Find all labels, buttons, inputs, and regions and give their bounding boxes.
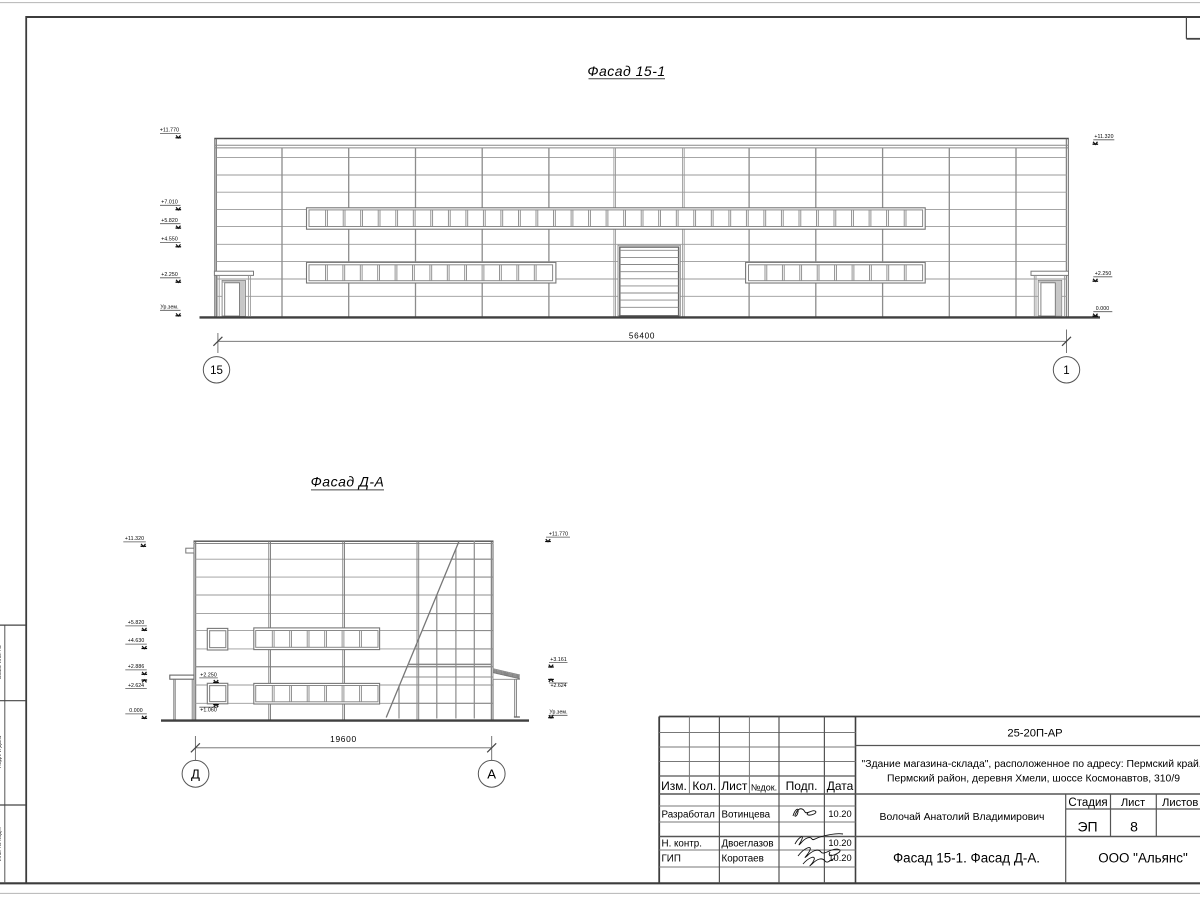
svg-text:+2.624: +2.624 (128, 683, 144, 689)
svg-text:1: 1 (1063, 365, 1069, 377)
svg-text:Волочай Анатолий Владимирович: Волочай Анатолий Владимирович (880, 812, 1045, 823)
svg-text:Листов: Листов (1162, 797, 1198, 809)
svg-text:Фасад 15-1. Фасад Д-А.: Фасад 15-1. Фасад Д-А. (893, 851, 1040, 866)
svg-text:Лист: Лист (721, 779, 748, 793)
svg-text:Лист: Лист (1121, 797, 1145, 809)
svg-text:Вотинцева: Вотинцева (722, 810, 771, 821)
svg-text:+4.630: +4.630 (128, 638, 145, 644)
svg-text:Взам. инв. №: Взам. инв. № (0, 645, 3, 679)
svg-text:+11.770: +11.770 (549, 531, 568, 537)
svg-text:Подп. и дата: Подп. и дата (0, 735, 3, 768)
svg-text:+11.320: +11.320 (1094, 134, 1113, 140)
svg-text:+5.820: +5.820 (128, 620, 145, 626)
svg-text:"Здание магазина-склада", расп: "Здание магазина-склада", расположенное … (862, 759, 1200, 770)
svg-text:+7.010: +7.010 (161, 200, 178, 206)
svg-text:+3.161: +3.161 (550, 657, 567, 663)
svg-text:ООО "Альянс": ООО "Альянс" (1098, 851, 1188, 866)
svg-text:+11.770: +11.770 (160, 128, 179, 134)
svg-text:+11.320: +11.320 (125, 536, 144, 542)
svg-text:ГИП: ГИП (662, 854, 681, 865)
svg-text:+4.550: +4.550 (161, 237, 178, 243)
svg-text:10.20: 10.20 (828, 853, 851, 863)
svg-text:10.20: 10.20 (828, 838, 851, 848)
svg-text:+5.820: +5.820 (161, 218, 178, 224)
svg-text:25-20П-АР: 25-20П-АР (1007, 727, 1062, 739)
svg-text:Д: Д (191, 767, 200, 782)
svg-text:Н. контр.: Н. контр. (662, 839, 702, 850)
svg-text:+2.886: +2.886 (128, 664, 145, 670)
svg-text:Стадия: Стадия (1068, 797, 1107, 809)
svg-text:0.000: 0.000 (129, 708, 142, 714)
svg-text:Ур.зем.: Ур.зем. (160, 305, 178, 311)
svg-text:0.000: 0.000 (1096, 306, 1109, 312)
svg-text:Разработал: Разработал (662, 810, 716, 821)
svg-text:Коротаев: Коротаев (722, 854, 764, 865)
svg-text:+2.624: +2.624 (550, 683, 566, 689)
svg-text:Подп.: Подп. (786, 779, 818, 793)
svg-text:19600: 19600 (330, 734, 357, 744)
svg-text:+2.250: +2.250 (1095, 271, 1112, 277)
svg-text:+2.250: +2.250 (161, 272, 178, 278)
svg-text:А: А (487, 767, 496, 782)
svg-text:+1.060: +1.060 (200, 707, 217, 713)
svg-text:Изм.: Изм. (661, 779, 687, 793)
svg-text:Инв. № подл.: Инв. № подл. (0, 826, 3, 861)
svg-text:Ур.зем.: Ур.зем. (549, 710, 567, 716)
svg-text:8: 8 (1130, 819, 1138, 835)
svg-text:10.20: 10.20 (828, 809, 851, 819)
svg-text:Фасад Д-А: Фасад Д-А (311, 473, 385, 489)
svg-text:15: 15 (210, 365, 223, 377)
svg-text:№док.: №док. (751, 783, 777, 793)
svg-text:Кол.: Кол. (692, 779, 716, 793)
svg-text:Дата: Дата (827, 779, 854, 793)
svg-text:ЭП: ЭП (1077, 819, 1097, 835)
svg-text:Фасад 15-1: Фасад 15-1 (587, 63, 665, 79)
svg-text:Двоеглазов: Двоеглазов (722, 839, 774, 850)
svg-text:Пермский район, деревня Хмели,: Пермский район, деревня Хмели, шоссе Кос… (887, 773, 1180, 784)
svg-text:56400: 56400 (629, 331, 655, 340)
